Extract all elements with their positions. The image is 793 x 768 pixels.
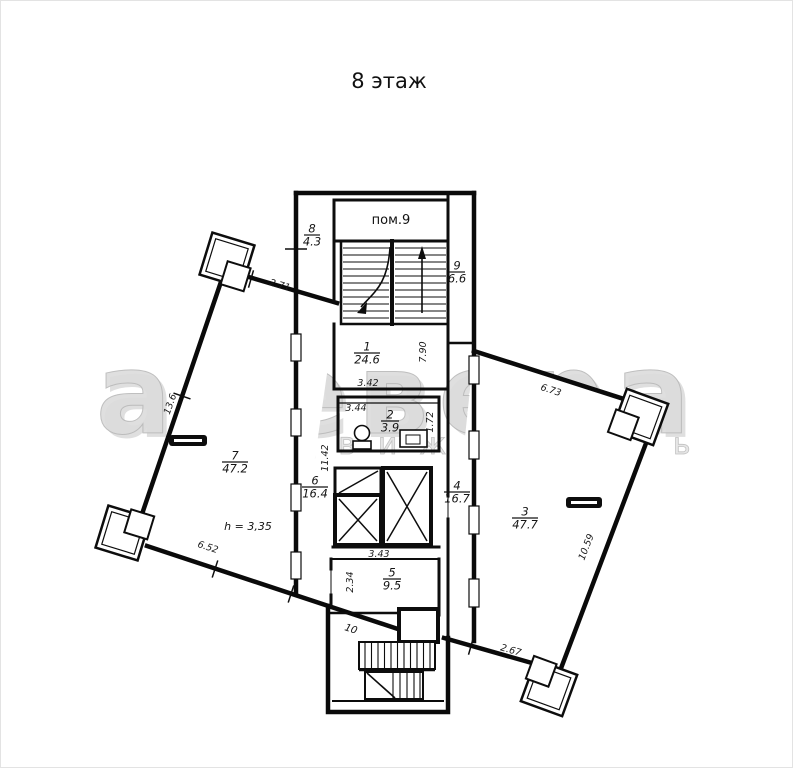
svg-text:6.6: 6.6 xyxy=(448,272,466,286)
dim-room2-right: 1.72 xyxy=(425,411,436,432)
dim-corridor-side: 11.42 xyxy=(320,444,331,471)
lower-stair-number: 10 xyxy=(343,622,359,636)
svg-text:16.4: 16.4 xyxy=(302,487,328,501)
svg-text:9.5: 9.5 xyxy=(383,579,401,593)
svg-text:8: 8 xyxy=(308,222,315,236)
dim-room2-left: 3.44 xyxy=(345,403,366,414)
svg-text:3: 3 xyxy=(521,505,528,519)
svg-text:4.3: 4.3 xyxy=(303,235,321,249)
sink-basin xyxy=(406,435,420,444)
window-left-2 xyxy=(291,409,301,436)
room-label-9: 9 6.6 xyxy=(448,259,466,286)
svg-text:24.6: 24.6 xyxy=(354,353,380,367)
svg-text:7: 7 xyxy=(231,449,239,463)
window-right-1 xyxy=(469,356,479,384)
window-left-3 xyxy=(291,484,301,511)
stair-down-curve xyxy=(361,247,390,307)
ceiling-height-note: h = 3,35 xyxy=(224,520,272,533)
svg-text:47.2: 47.2 xyxy=(222,462,248,476)
floor-plan-page: аревера аревера недвижимость 8 этаж xyxy=(0,0,793,768)
room-label-5: 5 9.5 xyxy=(383,566,401,593)
svg-text:1: 1 xyxy=(363,340,370,354)
toilet-icon xyxy=(355,426,370,441)
svg-text:6: 6 xyxy=(311,474,318,488)
svg-text:4: 4 xyxy=(453,479,460,493)
toilet-base xyxy=(353,441,371,449)
window-right-3 xyxy=(469,506,479,534)
staircase-top xyxy=(343,246,446,318)
svg-text:16.7: 16.7 xyxy=(444,492,470,506)
staircase-bottom xyxy=(359,609,438,699)
svg-text:5: 5 xyxy=(388,566,395,580)
stairwell-room-label: пом.9 xyxy=(372,213,411,228)
svg-text:2: 2 xyxy=(386,408,393,422)
pillar-bottom-right xyxy=(518,656,578,716)
page-title: 8 этаж xyxy=(351,69,427,93)
svg-text:3.9: 3.9 xyxy=(381,421,399,435)
stub-room7-slot xyxy=(174,439,202,442)
svg-text:47.7: 47.7 xyxy=(512,518,538,532)
dim-lift-width: 3.43 xyxy=(368,549,389,560)
room-label-8: 8 4.3 xyxy=(303,222,321,249)
bottom-stair-room xyxy=(399,609,438,642)
window-right-2 xyxy=(469,431,479,459)
window-left-1 xyxy=(291,334,301,361)
window-left-4 xyxy=(291,552,301,579)
dim-room1-width: 3.42 xyxy=(357,378,378,389)
svg-text:9: 9 xyxy=(453,259,460,273)
floor-plan-svg: аревера аревера недвижимость 8 этаж xyxy=(1,1,793,768)
elevator-block xyxy=(335,468,431,545)
dim-room1-side: 7.90 xyxy=(418,341,429,362)
window-right-4 xyxy=(469,579,479,607)
dim-room5-side: 2.34 xyxy=(345,571,356,592)
stub-room3-slot xyxy=(571,501,597,504)
